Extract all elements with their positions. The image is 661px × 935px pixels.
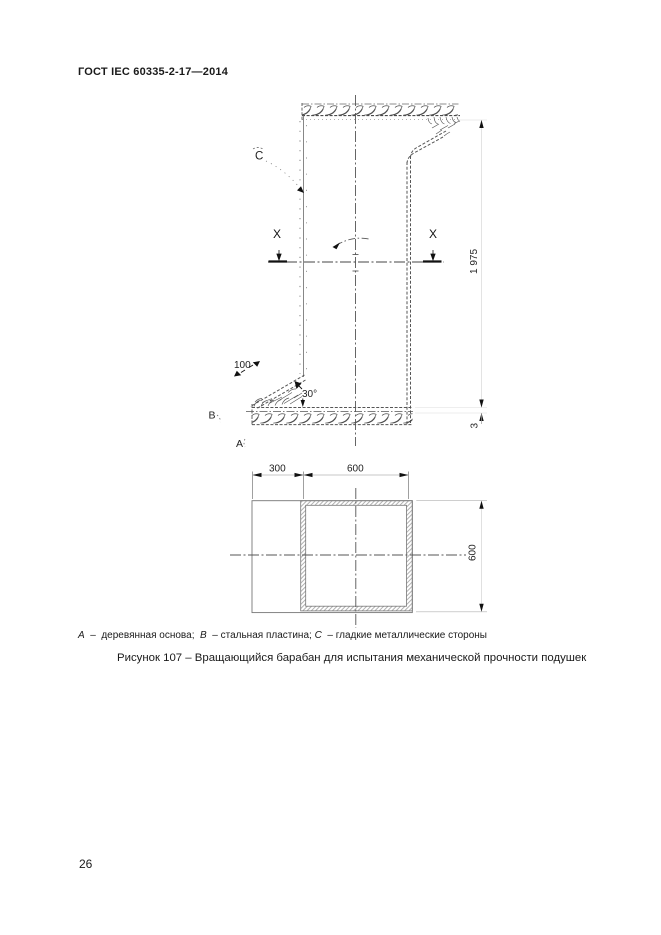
svg-text:3: 3 <box>470 423 481 429</box>
svg-text:100: 100 <box>234 360 251 371</box>
svg-text:600: 600 <box>468 544 479 561</box>
svg-text:B: B <box>209 410 216 422</box>
svg-text:A: A <box>236 438 243 450</box>
svg-text:600: 600 <box>347 464 364 475</box>
svg-text:X: X <box>429 227 437 241</box>
svg-text:C: C <box>255 151 263 163</box>
svg-text:X: X <box>273 227 281 241</box>
svg-text:1 975: 1 975 <box>469 249 480 274</box>
svg-text:30°: 30° <box>302 389 317 400</box>
svg-text:300: 300 <box>269 464 286 475</box>
